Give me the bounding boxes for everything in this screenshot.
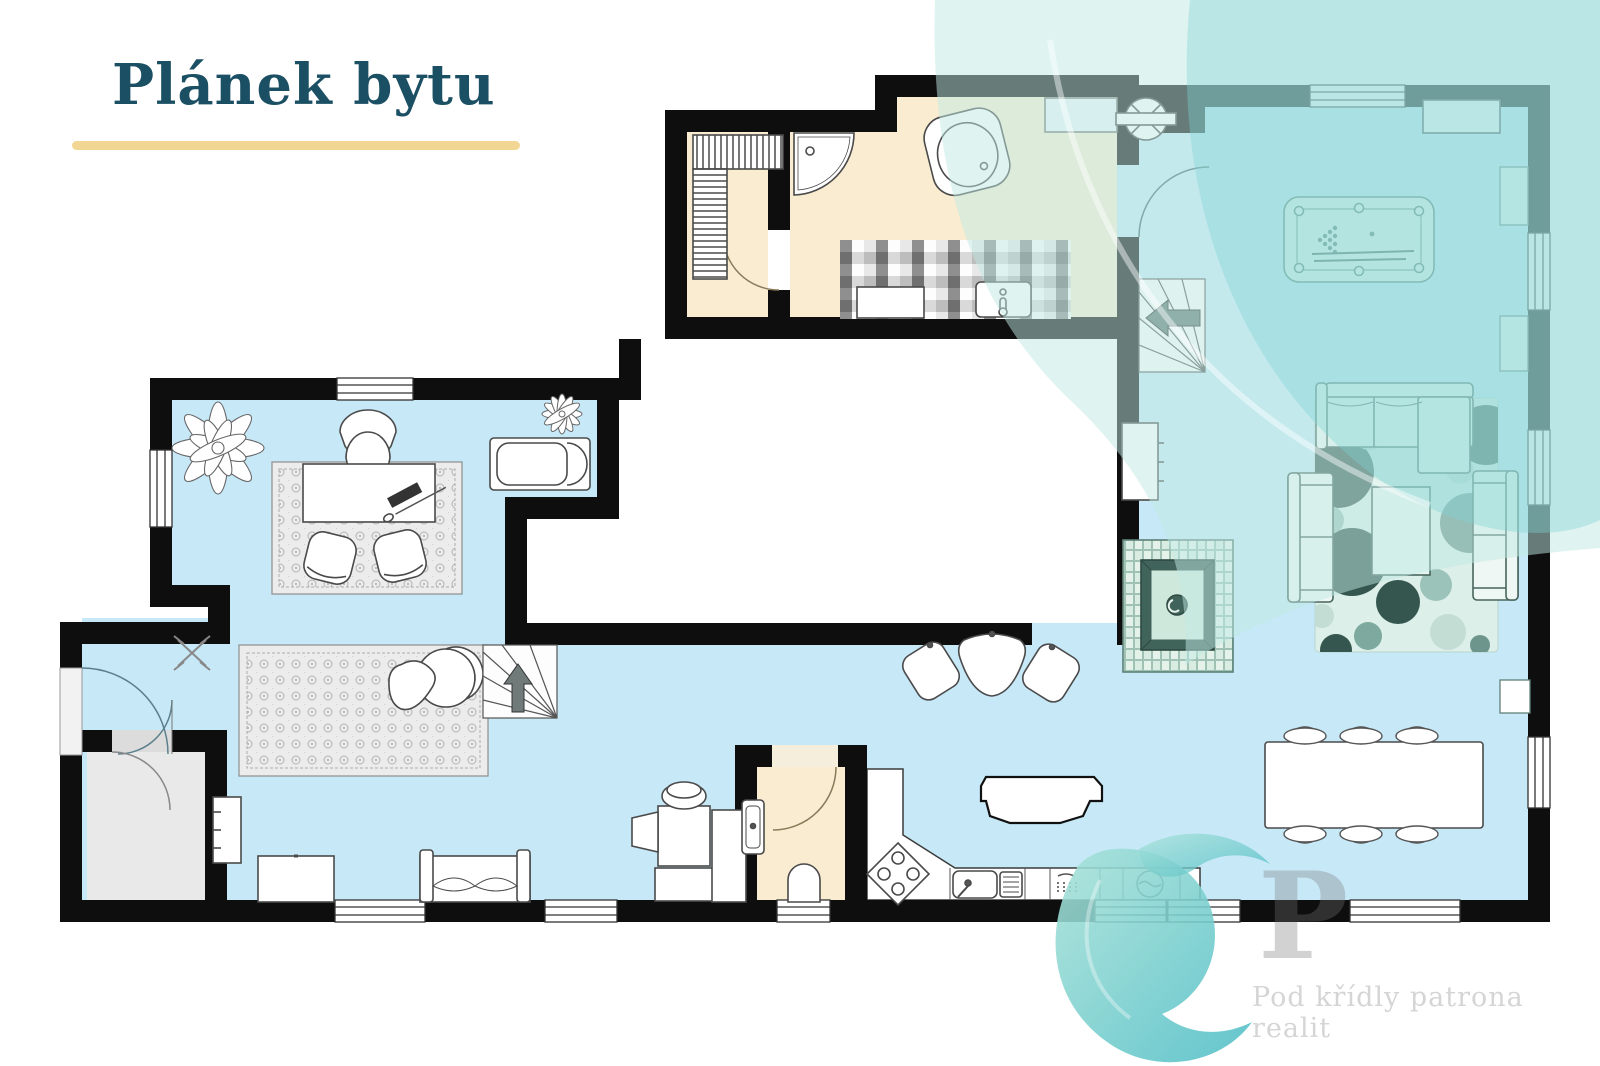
daybed <box>490 438 590 490</box>
dining-table <box>1265 742 1483 828</box>
window-bottom-3 <box>777 900 830 922</box>
vanity-stove <box>857 287 924 318</box>
window-bottom-1 <box>335 900 425 922</box>
bench-sofa <box>420 850 530 902</box>
watermark-letter: P <box>1258 846 1348 987</box>
window-office-left <box>150 450 172 527</box>
window-right-3 <box>1528 737 1550 808</box>
kitchen-sink <box>953 871 1022 898</box>
window-bottom-2 <box>545 900 617 922</box>
sideboard <box>258 856 334 902</box>
straight-stairs <box>483 645 557 718</box>
toilet <box>788 864 820 902</box>
window-office-top <box>337 378 413 400</box>
shelf-unit <box>213 797 241 863</box>
slide: Plánek bytu <box>0 0 1600 1066</box>
kitchen-island <box>981 777 1102 823</box>
watermark-text: Pod křídly patrona realit <box>1252 982 1600 1044</box>
wc-sink <box>742 800 764 854</box>
storage-room-floor <box>87 752 205 904</box>
window-bottom-5 <box>1350 900 1460 922</box>
floorplan: P <box>0 0 1600 1066</box>
large-plant <box>172 402 264 494</box>
